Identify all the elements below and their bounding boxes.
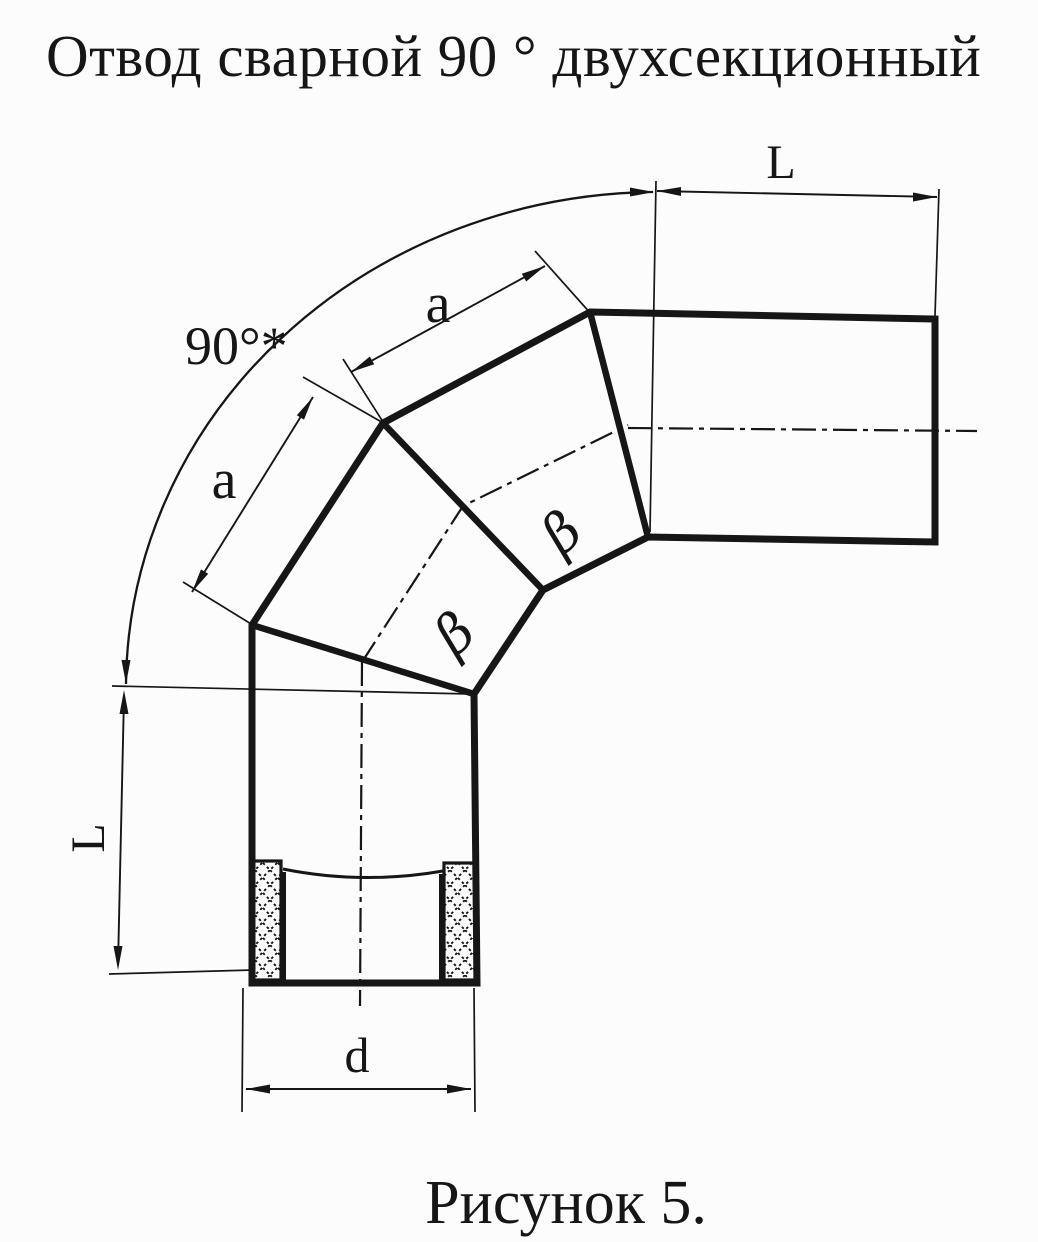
d-extension-line-right xyxy=(474,988,475,1112)
left-dimension-line xyxy=(118,696,124,965)
upper-a-arrow-start xyxy=(351,357,374,373)
lower-a-extension-line-2 xyxy=(303,377,385,424)
lower-a-arrow-start xyxy=(192,569,208,592)
top-extension-line-right xyxy=(935,189,939,316)
top-length-label: L xyxy=(766,136,795,189)
socket-hatch-left xyxy=(251,861,281,980)
top-dimension-line xyxy=(657,191,937,197)
weld-seam-3 xyxy=(590,312,648,537)
angle-arc-arrow-top xyxy=(630,188,654,197)
upper-bevel-angle-label: β xyxy=(527,498,594,567)
left-dim-arrow-top xyxy=(120,690,129,714)
scanned-page: Отвод сварной 90 ° двухсекционный xyxy=(0,0,1038,1242)
left-dim-arrow-bottom xyxy=(114,946,123,970)
angle-dimension-arc xyxy=(126,192,653,684)
dimension-upper-a: a xyxy=(343,251,592,425)
dimension-d: d xyxy=(242,988,475,1112)
elbow-outline xyxy=(252,312,935,983)
upper-a-extension-line-1 xyxy=(343,359,385,425)
d-extension-line-left xyxy=(242,988,243,1112)
left-extension-line-top xyxy=(112,686,471,694)
top-extension-line-left xyxy=(650,181,656,532)
pipe-break-line xyxy=(283,869,443,878)
lower-bevel-angle-label: β xyxy=(420,599,487,668)
angle-arc-arrow-bottom xyxy=(122,660,131,684)
socket-hatch-right xyxy=(444,863,475,980)
centerline-horizontal xyxy=(628,428,977,431)
top-dim-arrow-left xyxy=(657,187,681,196)
angle-label: 90°* xyxy=(185,316,288,376)
socket-section xyxy=(251,861,475,980)
figure-caption: Рисунок 5. xyxy=(425,1168,707,1239)
lower-a-arrow-end xyxy=(297,397,313,420)
diameter-label: d xyxy=(345,1027,370,1083)
d-arrow-left xyxy=(246,1085,270,1094)
dimension-top-L: L xyxy=(650,136,939,532)
top-dim-arrow-right xyxy=(913,193,937,202)
d-arrow-right xyxy=(447,1085,471,1094)
left-extension-line-bottom xyxy=(109,970,253,974)
weld-seam-2 xyxy=(383,423,543,590)
upper-a-arrow-end xyxy=(522,266,545,282)
centerline-vertical xyxy=(360,662,362,1006)
angle-dimension: 90°* xyxy=(122,188,655,685)
elbow-pipe xyxy=(252,312,935,983)
technical-drawing: 90°* L L a xyxy=(0,0,1038,1242)
lower-a-label: a xyxy=(212,449,237,511)
upper-a-extension-line-2 xyxy=(535,251,592,315)
left-length-label: L xyxy=(62,823,115,852)
upper-a-label: a xyxy=(426,273,451,335)
